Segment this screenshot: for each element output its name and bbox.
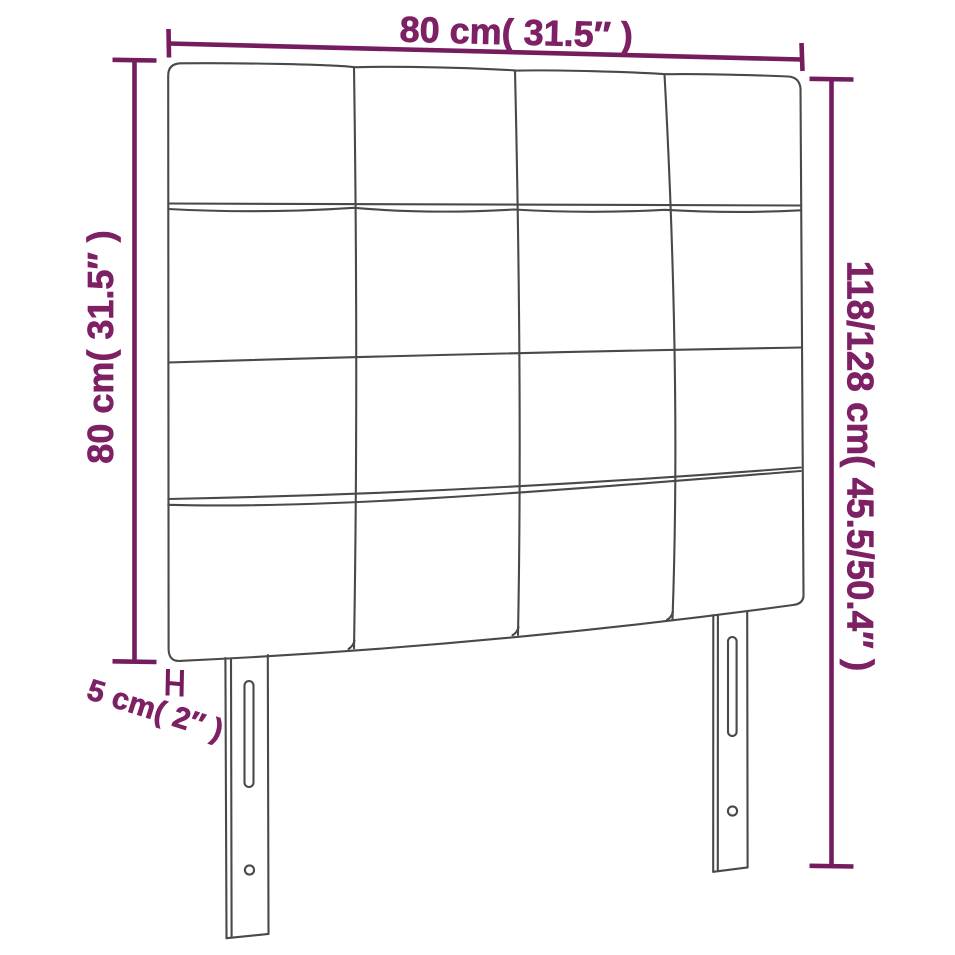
svg-text:5 cm( 2″ ): 5 cm( 2″ ) [83,673,227,747]
svg-text:80 cm( 31.5″ ): 80 cm( 31.5″ ) [399,9,633,56]
svg-text:118/128 cm( 45.5/50.4″ ): 118/128 cm( 45.5/50.4″ ) [840,261,881,671]
svg-text:80 cm( 31.5″ ): 80 cm( 31.5″ ) [80,230,121,463]
